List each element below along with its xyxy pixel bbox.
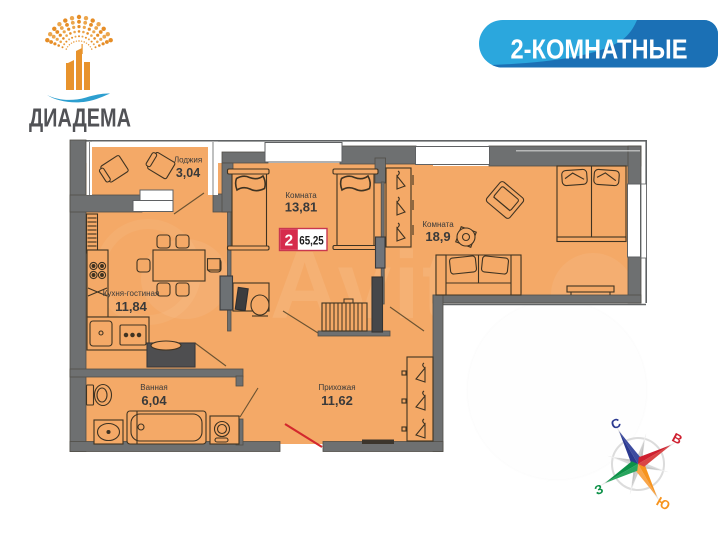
svg-text:Кухня-гостиная: Кухня-гостиная — [103, 289, 160, 298]
svg-text:65,25: 65,25 — [299, 236, 324, 248]
svg-text:6,04: 6,04 — [141, 393, 167, 408]
svg-text:Прихожая: Прихожая — [318, 383, 355, 392]
svg-text:11,62: 11,62 — [321, 393, 353, 408]
svg-text:3,04: 3,04 — [176, 166, 200, 180]
svg-text:2-КОМНАТНЫЕ: 2-КОМНАТНЫЕ — [511, 34, 688, 65]
svg-text:18,9: 18,9 — [425, 229, 450, 244]
svg-text:Ванная: Ванная — [140, 383, 167, 392]
svg-text:ДИАДЕМА: ДИАДЕМА — [29, 105, 131, 133]
svg-text:13,81: 13,81 — [285, 200, 318, 215]
svg-text:2: 2 — [284, 233, 293, 250]
svg-text:Лоджия: Лоджия — [174, 156, 202, 165]
svg-text:Комната: Комната — [422, 220, 454, 229]
svg-text:11,84: 11,84 — [115, 299, 148, 314]
